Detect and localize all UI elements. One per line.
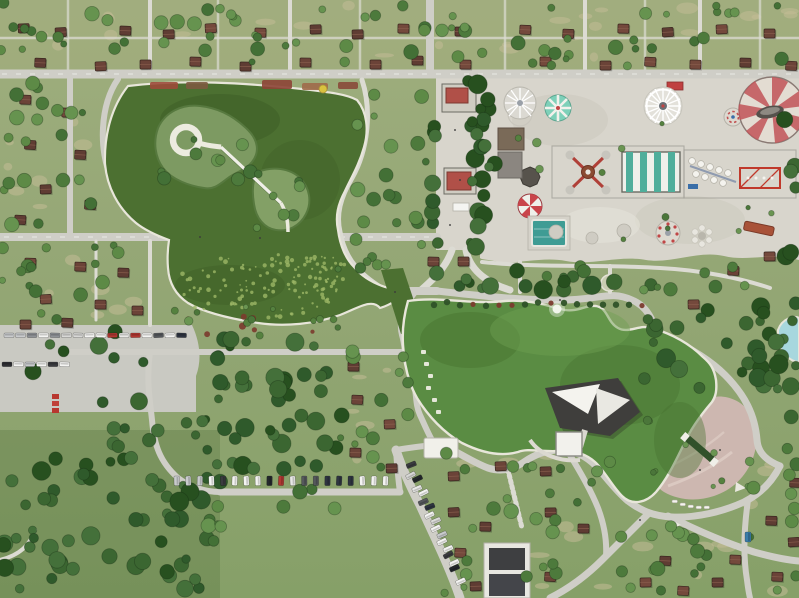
pedestrian <box>559 299 561 301</box>
picnic-cabin <box>740 58 752 68</box>
tree <box>160 564 175 579</box>
tree <box>295 409 308 422</box>
tree <box>462 556 472 566</box>
lily-pad <box>327 301 330 304</box>
tree <box>696 313 706 323</box>
lily-pad <box>275 260 277 262</box>
car <box>13 362 23 367</box>
tree <box>789 297 799 310</box>
pedestrian <box>199 236 201 238</box>
red-bush <box>548 300 553 305</box>
lily-pad <box>193 286 196 289</box>
tree <box>409 211 422 224</box>
tree <box>231 173 244 186</box>
car <box>142 333 152 338</box>
tree <box>212 460 222 470</box>
tree <box>563 56 569 62</box>
tree <box>616 531 627 542</box>
tree <box>277 461 292 476</box>
picnic-cabin <box>132 306 144 316</box>
picnic-cabin <box>495 461 508 472</box>
car <box>130 333 140 338</box>
paddle-boat <box>680 503 686 506</box>
tree <box>769 355 788 374</box>
lily-pad <box>311 268 313 270</box>
picnic-cabin <box>352 395 365 406</box>
tree <box>346 345 359 358</box>
picnic-cabin <box>74 150 87 161</box>
tree <box>177 580 194 597</box>
tree <box>660 121 665 126</box>
tree <box>467 117 477 127</box>
green-bush <box>626 302 632 308</box>
tree <box>375 393 388 406</box>
flower-bed <box>262 80 292 89</box>
tree <box>36 97 49 110</box>
tree <box>429 266 444 281</box>
green-bush <box>561 300 567 306</box>
picnic-cabin <box>95 61 108 72</box>
lily-pad <box>266 316 270 320</box>
lily-pad <box>263 294 268 299</box>
tree <box>334 408 349 423</box>
picnic-cabin <box>712 578 724 588</box>
tree <box>784 164 798 178</box>
lily-pad <box>321 256 323 258</box>
tree <box>449 12 456 19</box>
tree <box>709 280 722 293</box>
lily-pad <box>266 271 270 275</box>
picnic-cabin <box>352 30 364 41</box>
tree <box>85 6 100 21</box>
tree <box>125 451 138 464</box>
tree <box>316 316 323 323</box>
picnic-cabin <box>448 471 461 482</box>
picnic-cabin <box>310 25 322 36</box>
tree <box>109 352 120 363</box>
lily-pad <box>189 289 191 291</box>
tree <box>698 32 710 44</box>
tree <box>664 283 678 297</box>
picnic-cabin <box>300 58 312 68</box>
white-spoke-ride <box>644 87 682 125</box>
red-bush <box>509 303 514 308</box>
tree <box>352 119 363 130</box>
cabin-ridge <box>520 29 531 30</box>
tree <box>626 583 636 593</box>
tree <box>377 463 385 471</box>
tree <box>0 537 11 552</box>
tree <box>151 424 164 437</box>
tree <box>361 13 370 22</box>
car-glass <box>108 334 116 336</box>
tree <box>130 393 147 410</box>
tree <box>548 559 559 570</box>
car <box>278 476 284 486</box>
car <box>290 476 296 486</box>
tree <box>201 518 216 533</box>
tree <box>604 456 615 467</box>
tree <box>417 240 425 248</box>
car <box>267 476 273 486</box>
tree <box>511 36 525 50</box>
car <box>220 476 226 486</box>
tree <box>53 32 64 43</box>
lily-pad <box>323 266 326 269</box>
tree <box>402 408 414 420</box>
lily-pad <box>197 290 200 293</box>
tree <box>788 502 799 514</box>
tree <box>745 457 754 466</box>
tree <box>242 337 251 346</box>
tree <box>432 238 443 249</box>
tree <box>6 475 18 487</box>
tree <box>10 88 24 102</box>
tree <box>90 337 108 355</box>
car <box>745 532 751 542</box>
picnic-cabin <box>20 320 32 330</box>
tree <box>278 209 289 220</box>
paddle-boat <box>696 506 702 509</box>
aerial-park-photo: Top-down drone photograph of a large urb… <box>0 0 799 598</box>
tree <box>319 6 326 13</box>
dirt-patch <box>549 17 570 24</box>
tree <box>783 244 799 260</box>
lily-pad <box>298 296 301 299</box>
lily-pad <box>297 274 301 278</box>
lily-pad <box>305 256 308 259</box>
car-glass <box>327 477 329 485</box>
car <box>84 333 94 338</box>
service-building-roof <box>489 574 525 596</box>
tree <box>700 268 710 278</box>
tree <box>534 280 553 299</box>
tree <box>503 495 511 503</box>
lily-pad <box>309 257 312 260</box>
green-bush <box>483 303 489 309</box>
tree <box>606 274 622 290</box>
tree <box>782 378 799 395</box>
lily-pad <box>330 285 333 288</box>
car <box>185 476 191 486</box>
green-bush <box>457 302 463 308</box>
paddle-boat <box>672 500 678 503</box>
tree <box>0 242 9 254</box>
picnic-cabin <box>120 26 133 37</box>
lily-pad <box>301 311 305 315</box>
lily-pad <box>314 276 317 279</box>
tree <box>550 514 562 526</box>
lily-pad <box>259 274 262 277</box>
dirt-patch <box>4 163 13 171</box>
pedestrian <box>639 519 641 521</box>
tree <box>643 416 651 424</box>
lily-pad <box>253 301 257 305</box>
tree <box>29 285 42 298</box>
water-shade <box>175 265 285 305</box>
lily-pad <box>306 260 309 263</box>
pedestrian <box>719 449 721 451</box>
teacup-pad <box>617 224 631 238</box>
tree <box>395 368 403 376</box>
tree <box>243 305 248 310</box>
tree <box>367 192 381 206</box>
tree <box>785 488 797 500</box>
car <box>359 476 365 486</box>
tree <box>460 23 469 32</box>
green-bush <box>444 299 450 305</box>
tree <box>530 512 543 525</box>
car-glass <box>3 363 11 365</box>
flower-bed <box>150 82 178 89</box>
tree <box>403 377 414 388</box>
tree <box>0 277 6 283</box>
red-bush <box>470 302 475 307</box>
car-glass <box>37 363 45 365</box>
lily-pad <box>311 302 313 304</box>
tree <box>694 382 705 393</box>
tree <box>419 24 431 36</box>
tree <box>618 145 625 152</box>
tree <box>477 112 491 126</box>
dirt-patch <box>632 542 653 552</box>
lily-pad <box>290 312 293 315</box>
car <box>209 476 215 486</box>
red-stall <box>52 408 59 413</box>
car <box>61 333 71 338</box>
tree <box>663 11 669 17</box>
tree <box>478 189 490 201</box>
tree <box>182 555 191 564</box>
tree <box>56 173 70 187</box>
tree <box>369 89 380 100</box>
car <box>176 333 186 338</box>
pedestrian <box>259 237 261 239</box>
tree <box>640 286 649 295</box>
car-glass <box>166 334 174 336</box>
dirt-patch <box>681 29 699 36</box>
shore-stone <box>421 350 426 354</box>
car <box>348 476 353 486</box>
car-glass <box>351 477 353 485</box>
teacup-pad <box>549 225 563 239</box>
tree <box>573 498 581 506</box>
tree <box>32 114 43 125</box>
lily-pad <box>206 274 210 278</box>
car-glass <box>304 477 306 485</box>
tree <box>269 192 277 200</box>
green-bush <box>535 299 541 305</box>
lily-pad <box>336 276 338 278</box>
tree <box>773 385 782 394</box>
lily-pad <box>318 277 322 281</box>
picnic-cabin <box>690 60 702 70</box>
tree <box>247 462 260 475</box>
car <box>25 362 35 367</box>
tree <box>96 275 110 289</box>
lily-pad <box>335 290 337 292</box>
tree <box>293 484 308 499</box>
tree <box>482 278 499 295</box>
tree <box>129 512 143 526</box>
tree <box>155 536 167 548</box>
tree <box>591 466 602 477</box>
lily-pad <box>240 289 243 292</box>
car-glass <box>362 477 364 485</box>
tree <box>791 571 799 581</box>
car-glass <box>49 363 57 365</box>
lily-pad <box>305 291 308 294</box>
picnic-cabin <box>75 262 88 273</box>
tree <box>426 194 441 209</box>
tree <box>15 584 24 593</box>
tree <box>651 470 657 476</box>
picnic-cabin <box>40 294 53 305</box>
paddle-boat <box>704 506 710 509</box>
tree <box>460 464 470 474</box>
tree <box>630 36 638 44</box>
tree <box>515 135 521 141</box>
tree <box>507 461 519 473</box>
car <box>255 476 261 486</box>
lily-pad <box>239 284 241 286</box>
tree <box>539 563 547 571</box>
striped-pavilion <box>622 152 680 192</box>
lily-pad <box>313 285 316 288</box>
lily-pad <box>249 268 252 271</box>
tree <box>212 501 224 513</box>
tree <box>683 442 689 448</box>
car <box>165 333 175 338</box>
picnic-cabin <box>448 507 461 518</box>
tree <box>52 314 62 324</box>
lily-pad <box>324 257 326 259</box>
tree <box>206 32 214 40</box>
picnic-cabin <box>458 257 470 267</box>
dirt-patch <box>535 583 549 589</box>
tree <box>17 267 26 276</box>
car <box>153 333 163 338</box>
car <box>371 476 377 486</box>
tree <box>558 275 571 288</box>
tree <box>191 136 197 142</box>
car <box>2 362 12 367</box>
tree <box>608 40 623 55</box>
tree <box>78 468 90 480</box>
dirt-patch <box>676 3 698 14</box>
tree <box>270 307 275 312</box>
tree <box>146 473 159 486</box>
pedestrian <box>394 291 396 293</box>
tree <box>670 321 684 335</box>
tree <box>21 137 31 147</box>
tree <box>36 31 47 42</box>
dirt-patch <box>342 1 354 11</box>
tree <box>688 533 700 545</box>
lily-pad <box>281 309 283 311</box>
red-bush <box>252 327 257 332</box>
tree <box>21 500 31 510</box>
tree <box>461 274 472 285</box>
picnic-cabin <box>764 252 776 262</box>
lily-pad <box>268 289 270 291</box>
tree <box>736 228 741 233</box>
tree <box>62 535 74 547</box>
picnic-cabin <box>370 60 382 70</box>
lily-pad <box>303 263 307 267</box>
lily-pad <box>245 280 247 282</box>
tree <box>381 260 390 269</box>
tree <box>662 213 669 220</box>
water-shade <box>654 402 706 478</box>
lily-pad <box>309 260 312 263</box>
car-glass <box>120 334 128 336</box>
swing-ride <box>504 87 536 119</box>
lily-pad <box>222 278 225 281</box>
picnic-cabin <box>480 522 492 533</box>
lily-pad <box>228 258 230 260</box>
lily-pad <box>230 268 234 272</box>
tree <box>42 244 51 253</box>
tree <box>216 155 226 165</box>
tree <box>236 139 248 151</box>
tree <box>379 168 393 182</box>
car-glass <box>51 334 59 336</box>
picnic-cabin <box>140 60 152 70</box>
tree <box>0 45 6 54</box>
lily-pad <box>330 267 332 269</box>
tree <box>370 10 381 21</box>
tree <box>404 45 419 60</box>
dirt-patch <box>174 31 191 37</box>
tree <box>85 198 97 210</box>
tree <box>358 216 370 228</box>
tree <box>623 62 631 70</box>
car <box>38 333 48 338</box>
car-glass <box>258 477 260 485</box>
tree <box>739 316 753 330</box>
tree <box>791 361 799 370</box>
tree <box>519 279 532 292</box>
tree <box>315 370 326 381</box>
shore-stone <box>432 398 437 402</box>
lily-pad <box>224 284 227 287</box>
tree <box>107 422 121 436</box>
tree <box>217 421 231 435</box>
dirt-patch <box>33 204 48 209</box>
tree <box>528 462 537 471</box>
red-stall <box>52 394 59 399</box>
lily-pad <box>332 257 334 259</box>
car <box>48 362 58 367</box>
lily-pad <box>263 287 266 290</box>
car-glass <box>281 477 283 485</box>
red-stall <box>52 401 59 406</box>
fountain-spray <box>553 305 562 314</box>
flower-bed <box>186 82 208 89</box>
car <box>50 333 60 338</box>
tree <box>398 352 408 362</box>
car <box>302 476 308 486</box>
picnic-cabin <box>578 524 590 534</box>
picnic-cabin <box>350 448 362 459</box>
tree <box>120 424 130 434</box>
dirt-patch <box>740 11 759 21</box>
picnic-cabin <box>764 29 776 39</box>
tree <box>3 177 15 189</box>
tree <box>29 533 38 542</box>
tree <box>773 586 781 594</box>
